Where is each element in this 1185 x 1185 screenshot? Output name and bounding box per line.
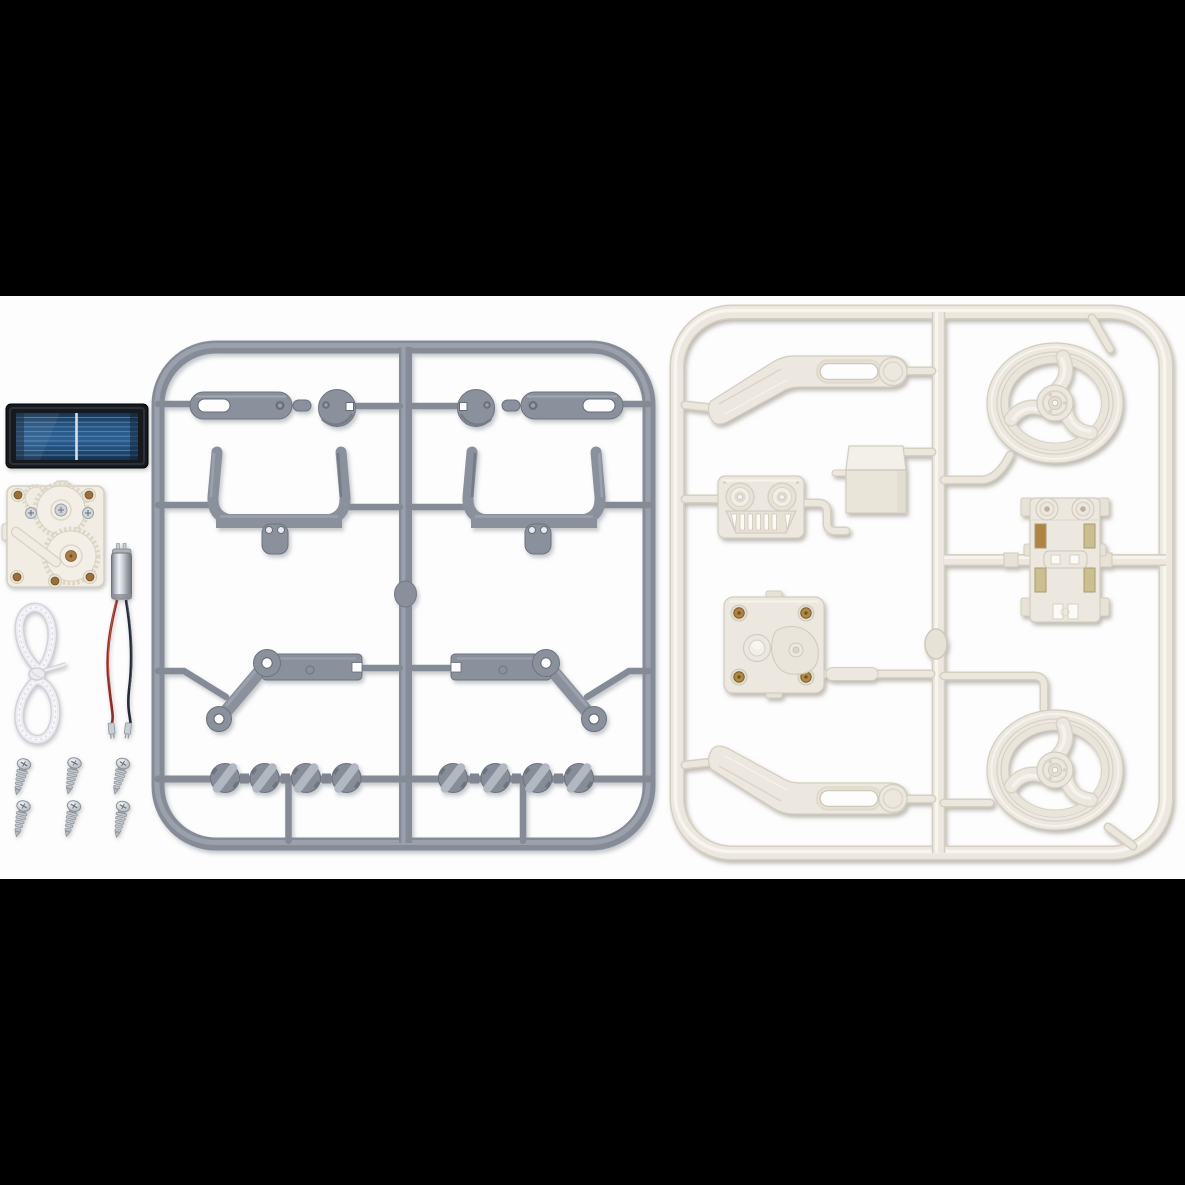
face-eye (726, 483, 754, 511)
brass-bushing (731, 669, 747, 685)
gray-knob (250, 764, 279, 793)
brass-bushing (798, 605, 814, 621)
robot-face-plate (718, 476, 804, 538)
brass-bushing (731, 605, 747, 621)
gray-knob (481, 764, 510, 793)
white-wheel-top (987, 343, 1123, 463)
face-eye (768, 483, 796, 511)
gray-knob (439, 764, 468, 793)
gray-knob (211, 764, 240, 793)
product-photo (0, 0, 1185, 1185)
gray-knob (565, 764, 594, 793)
gearbox-cover-plate (724, 591, 824, 698)
gray-knob (332, 764, 361, 793)
chassis-clip (1044, 551, 1087, 568)
gray-knob (523, 764, 552, 793)
gray-knob (292, 764, 321, 793)
face-grille (726, 511, 796, 533)
gearbox (2, 481, 104, 588)
photo-scene (0, 0, 1185, 1185)
chassis-plate (1021, 498, 1109, 622)
white-wheel-bottom (987, 710, 1123, 830)
gray-gate-blob (395, 581, 417, 607)
solar-center-busbar (75, 413, 78, 460)
white-gate-blob (925, 629, 947, 659)
motor-body (112, 553, 132, 599)
white-gate-capsule (826, 668, 878, 681)
solar-panel (6, 404, 148, 468)
